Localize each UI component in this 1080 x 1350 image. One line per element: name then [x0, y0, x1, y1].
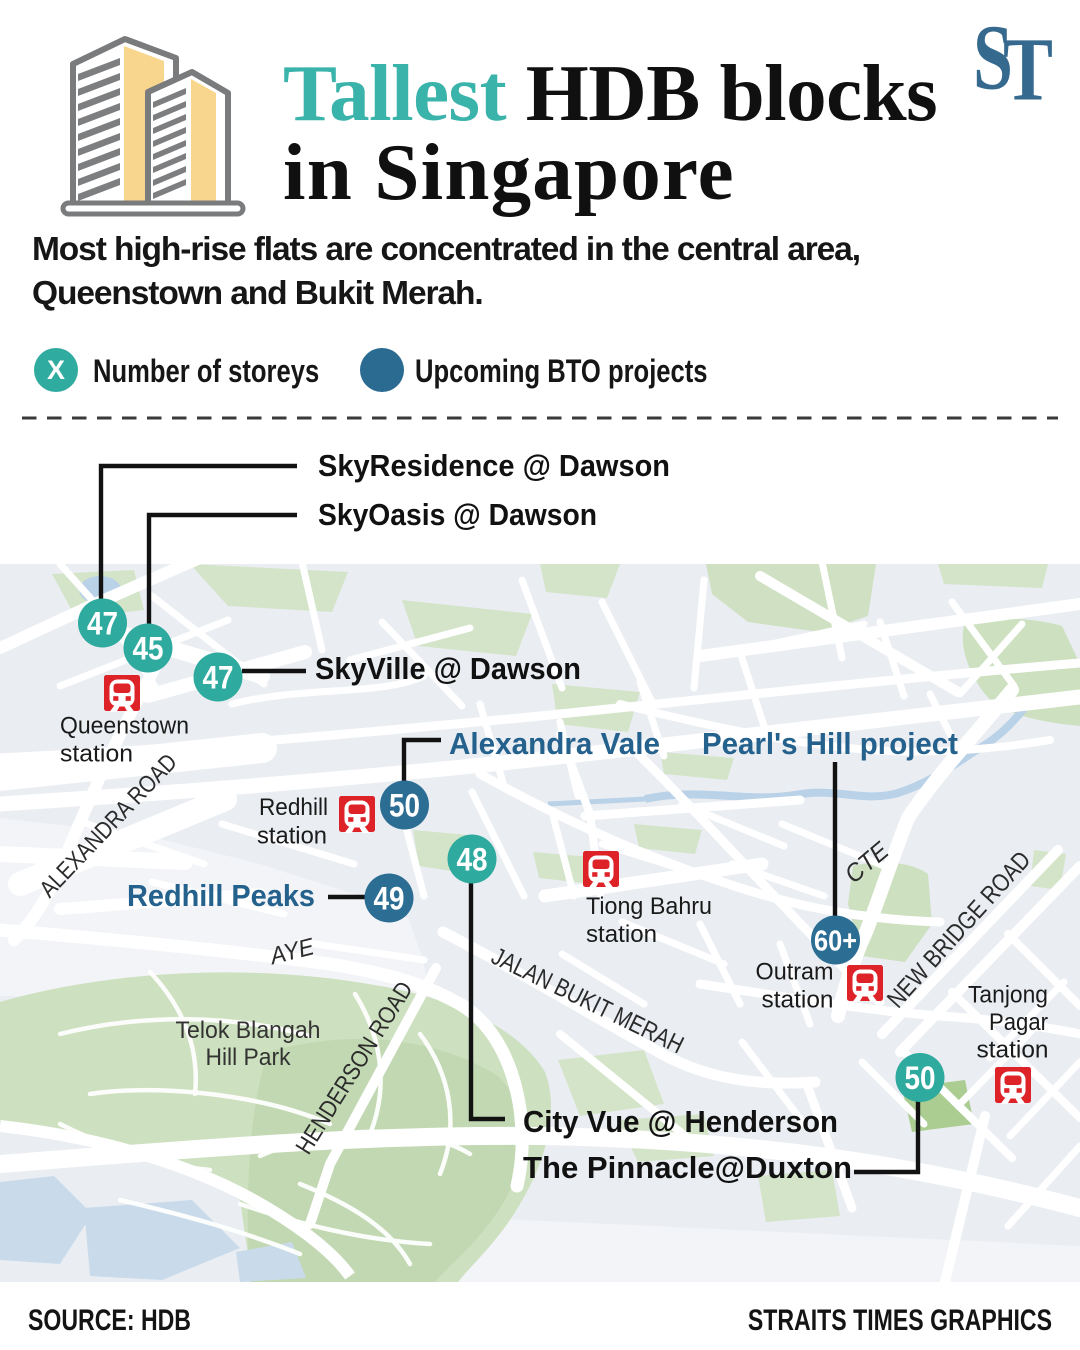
svg-text:Redhill: Redhill [259, 794, 328, 821]
svg-text:station: station [586, 921, 657, 948]
svg-text:49: 49 [374, 881, 405, 917]
svg-text:Redhill Peaks: Redhill Peaks [127, 878, 315, 913]
svg-text:47: 47 [203, 660, 234, 696]
svg-text:Hill Park: Hill Park [206, 1044, 292, 1071]
svg-text:AYE: AYE [266, 933, 318, 971]
svg-text:Pearl's Hill project: Pearl's Hill project [702, 726, 958, 761]
svg-text:station: station [60, 741, 133, 768]
svg-text:50: 50 [905, 1060, 936, 1096]
svg-text:station: station [762, 987, 834, 1014]
svg-text:City Vue @ Henderson: City Vue @ Henderson [523, 1104, 838, 1139]
svg-text:station: station [977, 1037, 1049, 1064]
svg-text:JALAN BUKIT MERAH: JALAN BUKIT MERAH [487, 942, 688, 1059]
svg-text:station: station [257, 823, 327, 850]
svg-text:Tanjong: Tanjong [968, 982, 1048, 1009]
svg-text:The Pinnacle@Duxton: The Pinnacle@Duxton [523, 1150, 852, 1185]
svg-text:47: 47 [87, 606, 118, 642]
svg-text:Telok Blangah: Telok Blangah [176, 1017, 321, 1044]
svg-text:60+: 60+ [814, 926, 857, 958]
svg-text:Tiong Bahru: Tiong Bahru [586, 893, 712, 920]
svg-text:SkyResidence @ Dawson: SkyResidence @ Dawson [318, 448, 670, 483]
svg-text:50: 50 [389, 788, 420, 824]
svg-text:CTE: CTE [839, 837, 894, 890]
svg-text:Alexandra Vale: Alexandra Vale [449, 726, 660, 761]
svg-text:SkyOasis @ Dawson: SkyOasis @ Dawson [318, 497, 597, 532]
svg-text:45: 45 [133, 631, 164, 667]
svg-text:Pagar: Pagar [989, 1009, 1048, 1036]
svg-text:Queenstown: Queenstown [60, 713, 189, 740]
svg-text:HENDERSON ROAD: HENDERSON ROAD [291, 977, 419, 1159]
svg-text:Outram: Outram [756, 959, 834, 986]
svg-text:48: 48 [457, 842, 488, 878]
svg-text:SkyVille @ Dawson: SkyVille @ Dawson [315, 651, 581, 686]
